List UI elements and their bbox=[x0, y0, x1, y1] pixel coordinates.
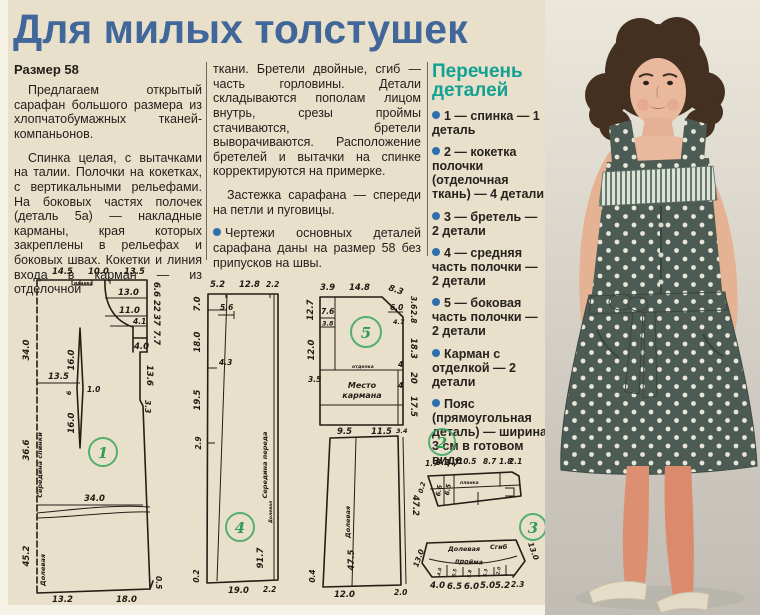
list-item: 1 — спинка — 1 деталь bbox=[432, 109, 547, 137]
list-item-text: 1 — спинка — 1 деталь bbox=[432, 109, 540, 137]
dim-label: 5.2 bbox=[210, 280, 225, 290]
dim-label: 3.4 bbox=[396, 427, 408, 435]
list-item-text: 3 — бретель — 2 детали bbox=[432, 210, 537, 238]
dim-label: 19.5 bbox=[193, 389, 203, 410]
dim-label: планка bbox=[460, 481, 479, 486]
dim-label: планка bbox=[74, 282, 93, 287]
dim-label: 4 bbox=[398, 381, 403, 390]
article-column-2: ткани. Бретели двойные, сгиб — часть гор… bbox=[213, 62, 421, 279]
dim-label: 2.2 bbox=[263, 585, 276, 594]
column-divider bbox=[427, 62, 428, 256]
pattern-piece-yoke-back: 1.7 3.2 3.7 10.5 8.7 1.8 2.1 0.2 6.6 6.5… bbox=[417, 429, 523, 506]
button bbox=[659, 223, 664, 228]
dim-label: 36.6 bbox=[22, 439, 32, 460]
page-title: Для милых толстушек bbox=[13, 6, 558, 53]
dim-label: 18.3 bbox=[408, 338, 418, 359]
page-margin bbox=[0, 605, 545, 615]
dim-label: 91.7 bbox=[256, 547, 266, 568]
pattern-piece-front-middle: 5.2 12.8 2.2 7.0 18.0 19.5 2.9 0.2 5.6 4… bbox=[192, 280, 279, 596]
pattern-piece-side-front: 3.9 14.8 8.3 3.6 2.8 6.0 4.7 18.3 4 20 4… bbox=[306, 283, 420, 600]
dim-label: 0.4 bbox=[308, 569, 317, 582]
dim-label: 5.8 bbox=[466, 569, 473, 578]
dim-label: 10.0 bbox=[88, 267, 109, 277]
dim-label: 34.0 bbox=[84, 494, 105, 504]
list-item: 3 — бретель — 2 детали bbox=[432, 210, 547, 238]
pattern-diagrams: 14.5 10.0 13.5 планка 13.0 11.0 4.1 4.0 … bbox=[0, 260, 560, 615]
dim-label: 16.0 bbox=[67, 412, 77, 433]
grain-label: Середина переда bbox=[261, 432, 269, 499]
dim-label: отделка bbox=[352, 365, 374, 370]
column-divider bbox=[206, 62, 207, 260]
dim-label: 45.2 bbox=[22, 545, 32, 567]
dim-label: 6 bbox=[65, 390, 73, 395]
dim-label: 37 bbox=[151, 314, 161, 326]
dim-label: 6.0 bbox=[464, 582, 479, 592]
dim-label: 18.0 bbox=[193, 331, 203, 352]
dim-label: 3.3 bbox=[143, 400, 152, 413]
piece-number: 3 bbox=[528, 519, 538, 537]
dim-label: 13.6 bbox=[144, 365, 154, 386]
dim-label: 47.5 bbox=[347, 549, 357, 571]
dim-label: 4.0 bbox=[133, 342, 149, 352]
button bbox=[659, 280, 664, 285]
bullet-icon bbox=[213, 228, 221, 236]
dim-label: 19.0 bbox=[228, 586, 249, 596]
dim-label: 0.5 bbox=[154, 576, 163, 589]
bullet-icon bbox=[432, 212, 440, 220]
dim-label: 3.9 bbox=[320, 283, 335, 293]
dim-label: 4 bbox=[398, 360, 403, 369]
grain-label: Долевая bbox=[39, 554, 47, 587]
grain-label: Середина спинки bbox=[36, 432, 44, 498]
dim-label: 20 bbox=[408, 372, 418, 384]
dim-label: 4.1 bbox=[133, 317, 146, 326]
dim-label: 13.0 bbox=[118, 288, 139, 298]
piece-number: 2 bbox=[436, 434, 447, 452]
dim-label: 0.2 bbox=[417, 480, 428, 494]
dim-label: 2.0 bbox=[495, 566, 502, 575]
dim-label: 3.5 bbox=[308, 375, 321, 384]
dim-label: 34.0 bbox=[22, 339, 32, 360]
pattern-piece-strap: Долевая Сгиб пройма 4.0 5.5 5.8 5.3 2.0 … bbox=[411, 514, 546, 592]
piece-number: 5 bbox=[361, 324, 371, 342]
paragraph: Застежка сарафана — спереди на петли и п… bbox=[213, 188, 421, 217]
dim-label: 12.8 bbox=[239, 280, 260, 290]
dim-label: 13.2 bbox=[52, 595, 73, 605]
dim-label: 14.5 bbox=[52, 267, 73, 277]
magazine-page: Для милых толстушек Размер 58 Предлагаем… bbox=[0, 0, 760, 615]
dim-label: 11.5 bbox=[371, 427, 392, 437]
bullet-icon bbox=[432, 111, 440, 119]
dim-label: 2.2 bbox=[266, 280, 279, 289]
dim-label: 13.0 bbox=[526, 541, 541, 561]
bow-knot bbox=[628, 297, 648, 311]
dim-label: 14.8 bbox=[349, 283, 370, 293]
dim-label: 9.5 bbox=[337, 427, 352, 437]
pocket-label: кармана bbox=[342, 391, 381, 400]
parts-list-title: Перечень деталей bbox=[432, 62, 547, 101]
page-margin bbox=[0, 0, 8, 615]
dim-label: 18.0 bbox=[116, 595, 137, 605]
dim-label: 6.5 bbox=[447, 582, 462, 592]
dim-label: 8.3 bbox=[387, 283, 404, 297]
pattern-piece-back: 14.5 10.0 13.5 планка 13.0 11.0 4.1 4.0 … bbox=[22, 267, 163, 605]
dim-label: 4.3 bbox=[219, 358, 232, 367]
dim-label: 4.7 bbox=[393, 318, 405, 326]
dim-label: 5.0 bbox=[480, 581, 495, 591]
dim-label: 1.0 bbox=[87, 385, 100, 394]
dim-label: 4.0 bbox=[436, 567, 443, 576]
dim-label: 2.0 bbox=[394, 588, 407, 597]
button bbox=[659, 253, 664, 258]
dim-label: 22 bbox=[151, 300, 161, 312]
dim-label: 2.1 bbox=[509, 457, 522, 466]
dim-label: 7.7 bbox=[151, 330, 161, 345]
skirt bbox=[561, 295, 757, 474]
face bbox=[630, 58, 686, 126]
grain-label: Долевая bbox=[268, 501, 274, 524]
piece-number: 4 bbox=[235, 519, 245, 537]
dim-label: 4.0 bbox=[429, 581, 445, 591]
dim-label: 3.8 bbox=[322, 320, 334, 328]
striped-yoke bbox=[599, 166, 717, 206]
dim-label: 6.0 bbox=[390, 303, 403, 312]
dim-label: 0.2 bbox=[192, 569, 201, 582]
size-heading: Размер 58 bbox=[14, 62, 202, 77]
dim-label: 13.5 bbox=[48, 372, 69, 382]
dim-label: 7.6 bbox=[321, 307, 334, 316]
paragraph: Предлагаем открытый сарафан большого раз… bbox=[14, 83, 202, 142]
dim-label: 7.0 bbox=[193, 296, 203, 311]
list-item: 2 — кокетка полочки (отделочная ткань) —… bbox=[432, 145, 547, 202]
dim-label: 8.7 bbox=[483, 457, 497, 466]
dim-label: 12.0 bbox=[307, 339, 317, 360]
dim-label: 5.2 bbox=[495, 581, 510, 591]
dim-label: 3.6 bbox=[409, 296, 418, 309]
dim-label: 16.0 bbox=[67, 349, 77, 370]
piece-number: 1 bbox=[98, 444, 108, 462]
grain-label: пройма bbox=[455, 557, 483, 566]
grain-label: Долевая bbox=[344, 506, 352, 539]
bullet-icon bbox=[432, 248, 440, 256]
dim-label: 12.7 bbox=[306, 299, 316, 320]
dim-label: 6.6 bbox=[151, 282, 161, 297]
dim-label: 5.6 bbox=[220, 303, 233, 312]
bullet-icon bbox=[432, 147, 440, 155]
grain-label: Долевая bbox=[447, 545, 480, 553]
dim-label: 47.2 bbox=[410, 494, 420, 516]
dim-label: 2.8 bbox=[409, 310, 418, 323]
dim-label: 13.5 bbox=[124, 267, 145, 277]
dim-label: 2.3 bbox=[511, 580, 524, 589]
model-photo bbox=[545, 0, 760, 615]
dim-label: 12.0 bbox=[334, 590, 355, 600]
dim-label: 2.9 bbox=[194, 436, 203, 449]
dim-label: 11.0 bbox=[119, 306, 140, 316]
dim-label: 17.5 bbox=[408, 396, 418, 417]
pocket-label: Место bbox=[348, 381, 377, 390]
list-item-text: 2 — кокетка полочки (отделочная ткань) —… bbox=[432, 145, 544, 201]
grain-label: Сгиб bbox=[490, 543, 508, 551]
dim-label: 6.5 bbox=[443, 483, 453, 496]
paragraph: ткани. Бретели двойные, сгиб — часть гор… bbox=[213, 62, 421, 179]
dim-label: 10.5 bbox=[458, 457, 477, 466]
belt-tie bbox=[643, 312, 657, 398]
